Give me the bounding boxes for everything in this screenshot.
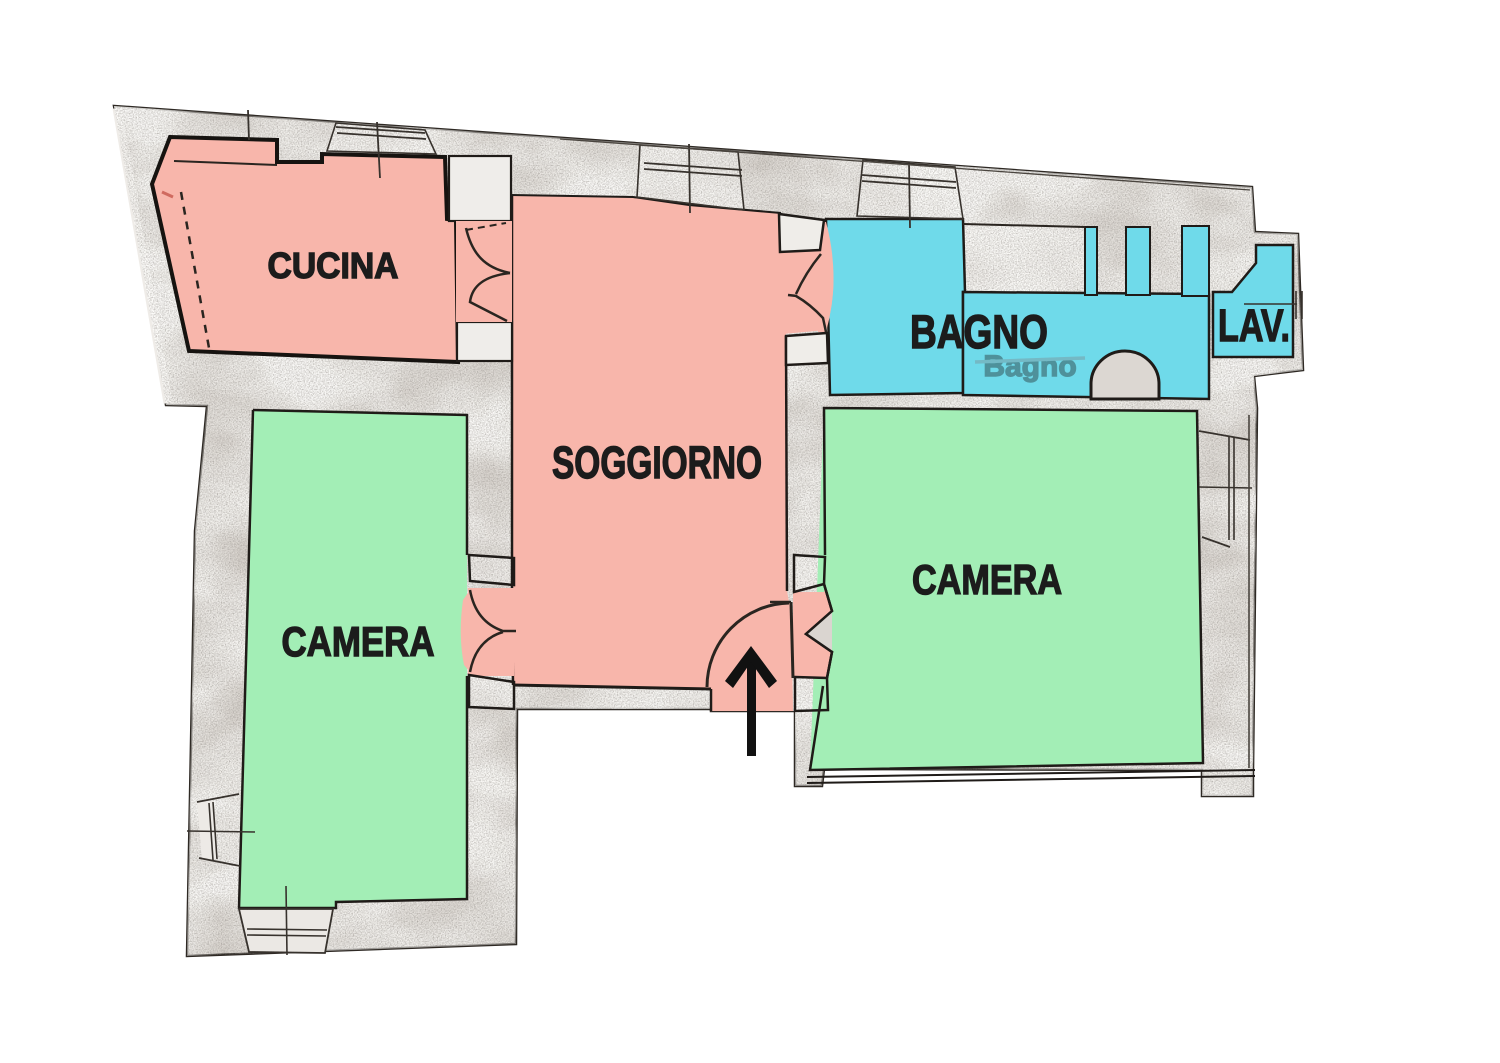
svg-text:CUCINA: CUCINA	[268, 245, 399, 286]
svg-text:BAGNO: BAGNO	[910, 305, 1048, 358]
svg-text:LAV.: LAV.	[1218, 300, 1290, 351]
svg-text:SOGGIORNO: SOGGIORNO	[552, 437, 762, 488]
svg-text:CAMERA: CAMERA	[912, 556, 1062, 603]
svg-text:CAMERA: CAMERA	[282, 618, 435, 665]
